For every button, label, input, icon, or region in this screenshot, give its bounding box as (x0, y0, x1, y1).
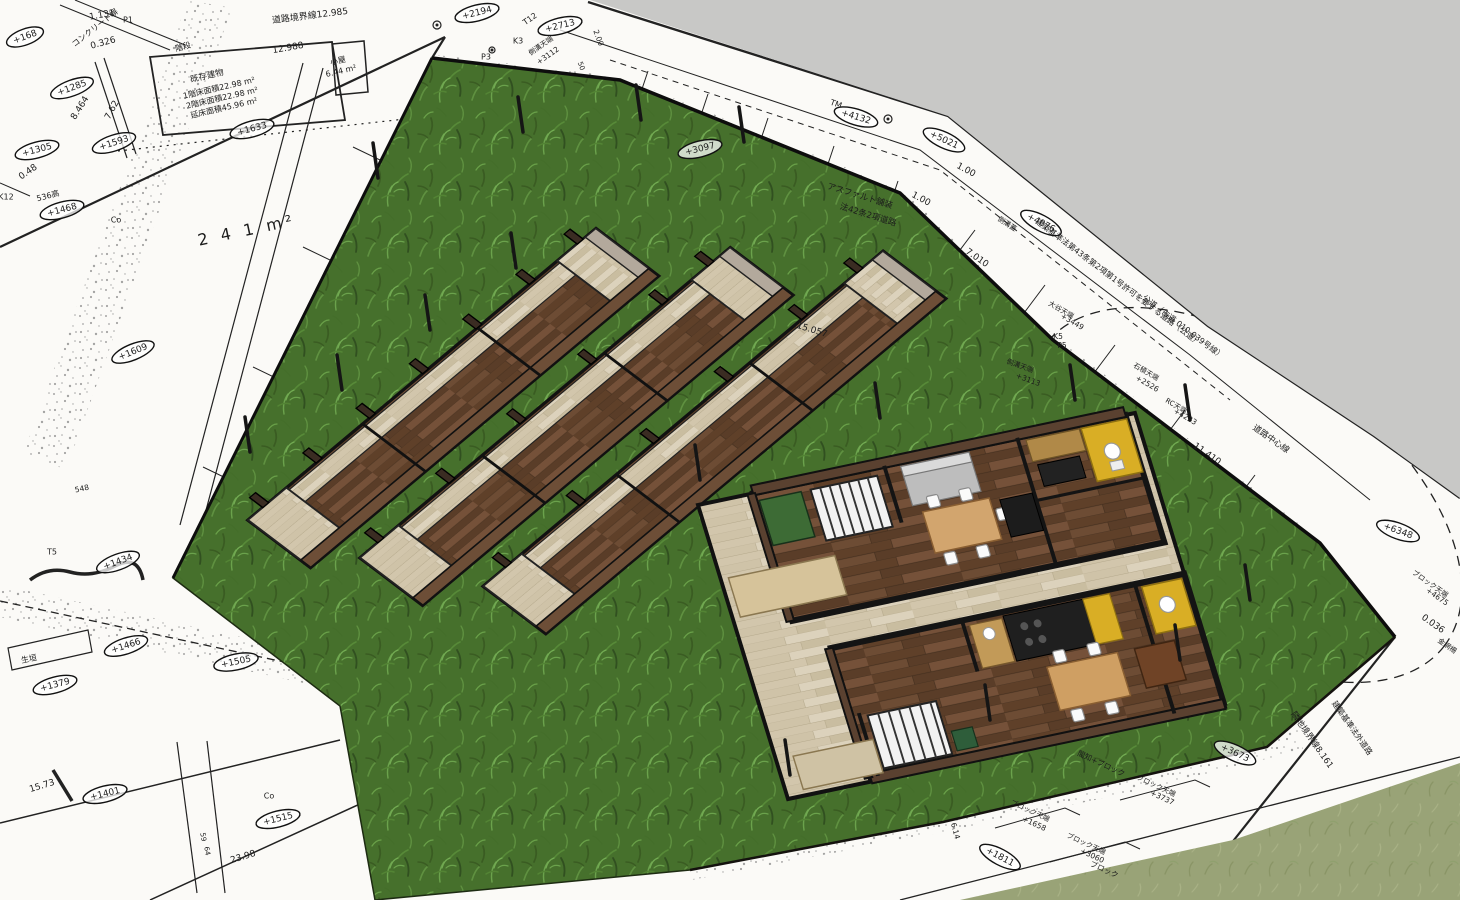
model-viewport[interactable]: コンクリート塀1.131P10.326+168+12858.4647.62+13… (0, 0, 1460, 900)
svg-text:K3: K3 (513, 37, 523, 46)
survey-label: P5 (1057, 341, 1067, 350)
survey-label: T5 (46, 548, 57, 557)
svg-text:K5: K5 (1053, 332, 1063, 341)
svg-text:K12: K12 (0, 193, 14, 202)
site-plan-3d-view: コンクリート塀1.131P10.326+168+12858.4647.62+13… (0, 0, 1460, 900)
survey-label: Co (111, 216, 122, 225)
svg-text:Co: Co (111, 216, 122, 225)
survey-label: Co (264, 792, 275, 801)
survey-label: K5 (1053, 332, 1063, 341)
svg-text:59: 59 (198, 832, 207, 842)
svg-text:P5: P5 (1057, 341, 1067, 350)
survey-label: K12 (0, 193, 14, 202)
survey-label: K3 (513, 37, 523, 46)
survey-label: 59 (198, 832, 207, 842)
survey-label: P1 (123, 16, 133, 25)
svg-text:P3: P3 (481, 53, 491, 62)
svg-text:T5: T5 (46, 548, 57, 557)
svg-text:Co: Co (264, 792, 275, 801)
svg-text:P1: P1 (123, 16, 133, 25)
survey-label: P3 (481, 53, 491, 62)
